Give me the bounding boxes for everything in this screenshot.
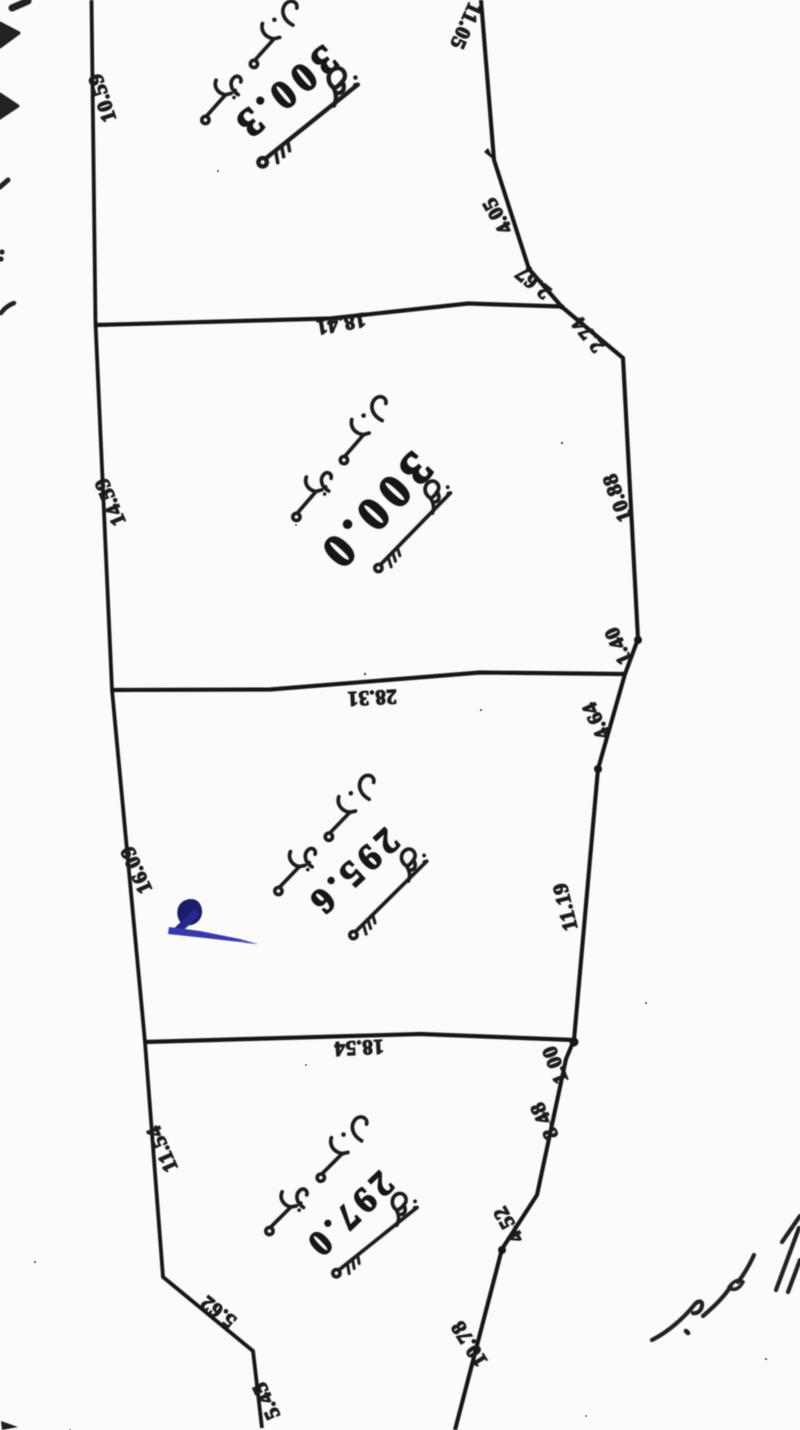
svg-text:28.31: 28.31 [346,685,397,712]
svg-text:18.54: 18.54 [333,1035,384,1062]
